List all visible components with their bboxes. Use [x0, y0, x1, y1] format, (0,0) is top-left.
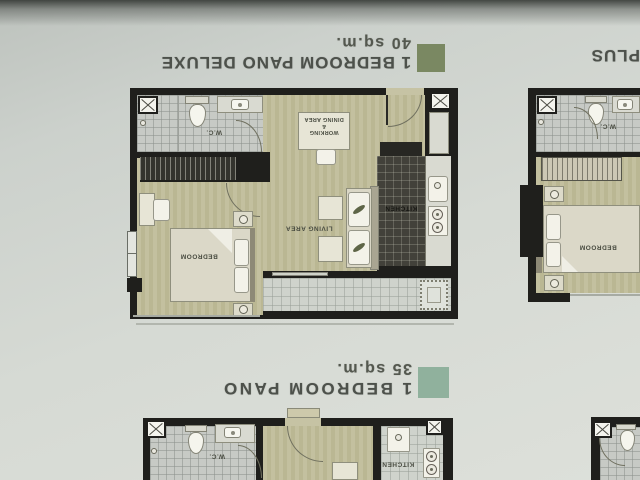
bed-fold	[562, 256, 578, 272]
plan-area-deluxe: 40 sq.m.	[161, 33, 411, 52]
wall-stub	[528, 293, 570, 302]
shower-icon	[151, 448, 157, 454]
window-wall-line	[133, 315, 260, 317]
pillow	[546, 214, 561, 240]
table	[332, 462, 358, 480]
shower-icon	[140, 120, 146, 126]
coffee-table	[318, 196, 343, 220]
kitchen-sink-icon	[428, 176, 448, 202]
pillow	[234, 239, 249, 266]
working-dining-line2: &	[299, 122, 349, 128]
room-label-working-dining: WORKING & DINING AREA	[299, 116, 349, 135]
lamp-icon	[239, 305, 248, 314]
room-label-kitchen: KITCHEN	[381, 204, 421, 211]
room-label-living: LIVING AREA	[280, 224, 338, 231]
plan-title-deluxe-block: 1 BEDROOM PANO DELUXE 40 sq.m.	[170, 26, 445, 72]
chair	[153, 199, 170, 221]
entrance-opening	[386, 88, 424, 95]
color-swatch-pano	[418, 367, 449, 398]
shaft-icon	[426, 419, 443, 435]
chair	[316, 149, 336, 165]
coffee-table	[318, 236, 343, 262]
room-label-bedroom: BEDROOM	[574, 243, 622, 250]
lamp-icon	[550, 279, 559, 288]
bed-fold	[208, 229, 232, 253]
toilet-icon	[185, 425, 207, 432]
door-leaf	[287, 408, 320, 418]
lamp-icon	[239, 215, 248, 224]
brochure-photo: 1 BEDROOM PANO DELUXE 40 sq.m. PLUS 1 BE…	[0, 0, 640, 480]
entry-cabinet	[429, 112, 449, 154]
stove-burner-icon	[426, 464, 437, 475]
window-wall-line	[570, 294, 640, 296]
sink-icon	[231, 99, 249, 110]
pillow	[546, 242, 561, 267]
color-swatch-deluxe	[417, 44, 445, 72]
shaft-icon	[537, 96, 557, 114]
washing-area-icon	[420, 280, 448, 310]
shaft-icon	[138, 96, 158, 114]
photo-top-shadow	[0, 0, 640, 26]
room-label-bedroom: BEDROOM	[176, 252, 222, 259]
stove-burner-icon	[432, 222, 443, 233]
nightstand	[544, 186, 564, 202]
shaft-icon	[430, 92, 451, 110]
pillow	[234, 267, 249, 293]
nightstand	[544, 275, 564, 291]
stove-burner-icon	[432, 209, 443, 220]
stove-burner-icon	[426, 451, 437, 462]
nightstand	[233, 211, 253, 227]
lamp-icon	[550, 190, 559, 199]
plan-area-pano: 35 sq.m.	[221, 359, 412, 378]
window	[127, 231, 137, 277]
shaft-icon	[593, 421, 612, 438]
toilet-icon	[185, 96, 209, 104]
sliding-door	[272, 272, 328, 276]
room-label-wc: W.C.	[200, 452, 234, 459]
plan-title-pano: 1 BEDROOM PANO	[221, 378, 412, 398]
room-label-wc: W.C.	[196, 128, 232, 135]
entrance-opening	[285, 418, 321, 426]
shaft-icon	[146, 420, 166, 438]
kitchen-counter-block	[380, 142, 422, 156]
shower-partition	[178, 95, 179, 152]
faucet-icon	[434, 182, 441, 189]
sink-icon	[617, 99, 633, 110]
wall-column	[236, 152, 270, 182]
wardrobe	[541, 157, 622, 181]
room-label-kitchen: KITCHEN	[377, 460, 419, 467]
wall-stub	[127, 278, 142, 292]
shower-icon	[538, 119, 544, 125]
plan-title-deluxe: 1 BEDROOM PANO DELUXE	[161, 52, 411, 72]
working-dining-line1: WORKING	[299, 129, 349, 135]
working-dining-line3: DINING AREA	[299, 116, 349, 122]
wall-block	[520, 185, 543, 257]
faucet-icon	[395, 434, 402, 441]
plan-title-plus: PLUS	[591, 45, 640, 65]
toilet-icon	[585, 96, 607, 103]
plan-title-plus-block: PLUS	[580, 45, 640, 65]
headboard	[250, 228, 255, 302]
sink-icon	[224, 427, 241, 438]
balcony-rail-line	[136, 323, 454, 325]
plan-title-pano-block: 1 BEDROOM PANO 35 sq.m.	[218, 356, 449, 398]
window-mullion	[128, 253, 136, 254]
